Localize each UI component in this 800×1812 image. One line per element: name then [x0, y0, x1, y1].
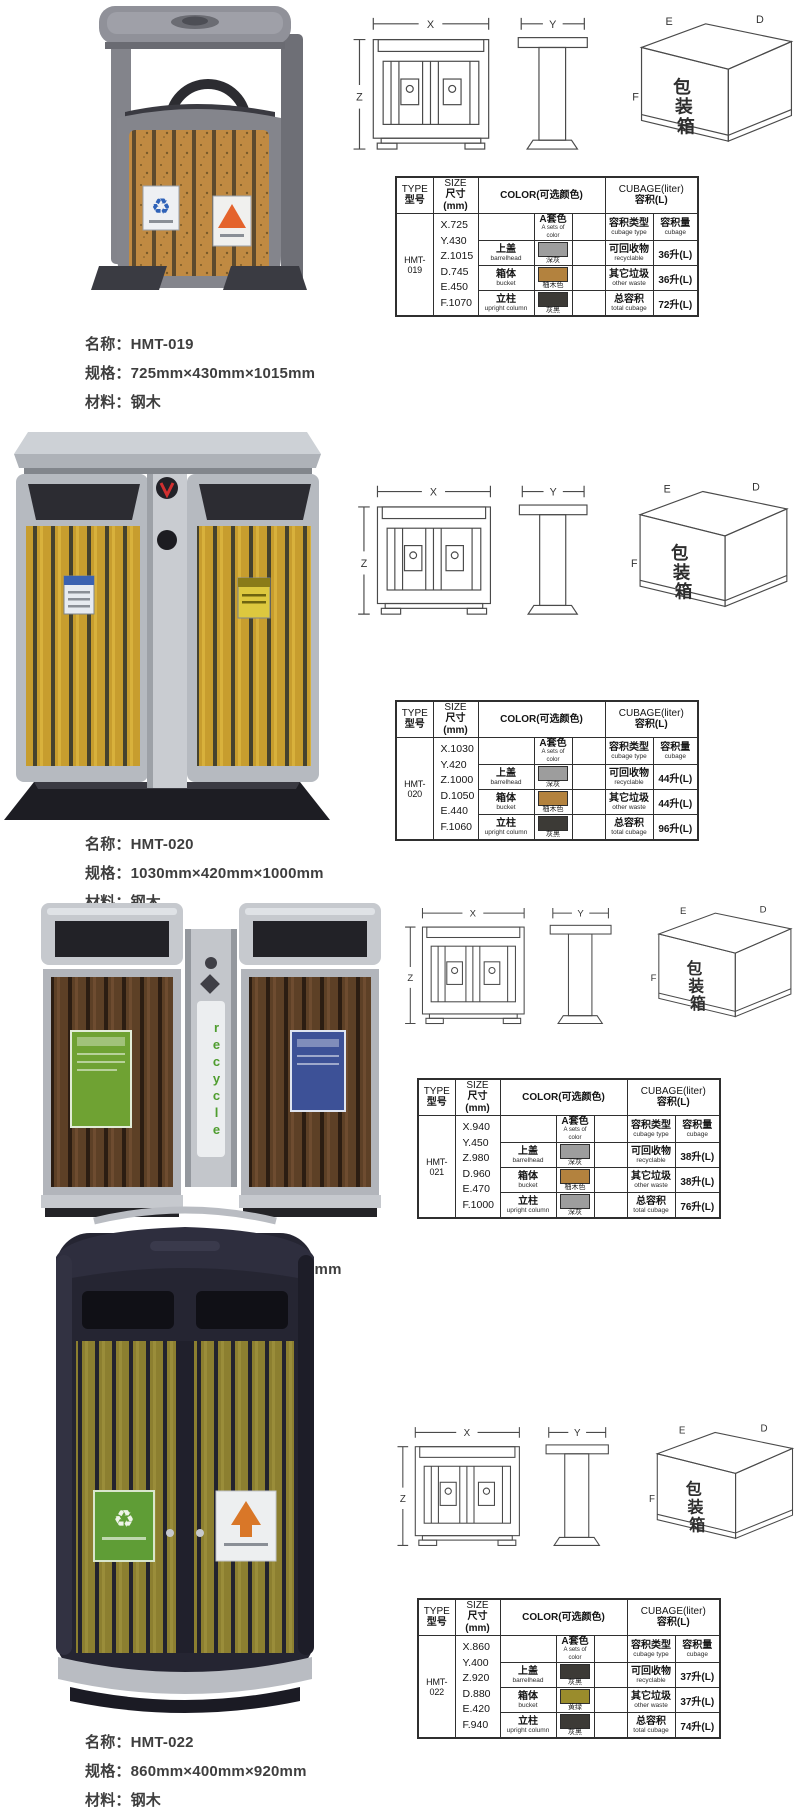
- color-swatch: [538, 766, 568, 781]
- spec-table-hmt-019: TYPE型号 SIZE尺寸(mm) COLOR(可选颜色) CUBAGE(lit…: [395, 176, 699, 317]
- product-photo-hmt-022: ♻: [30, 1195, 340, 1727]
- part-en: bucket: [479, 280, 534, 288]
- cubage-type: 总容积: [606, 294, 653, 305]
- swatch-cell: 柚木色: [556, 1168, 594, 1193]
- recycle-icon: ♻: [151, 194, 171, 219]
- cubage-type-cell: 总容积total cubage: [627, 1713, 675, 1739]
- cubage-amount-header-cell: 容积量cubage: [675, 1116, 720, 1143]
- cubage-cn: 容积(L): [606, 719, 698, 731]
- blank-cell: [594, 1636, 627, 1663]
- color-header: COLOR(可选颜色): [479, 714, 605, 726]
- part-cn: 立柱: [501, 1196, 556, 1207]
- label-text-line: [297, 1055, 339, 1057]
- cubage-type-header-cell: 容积类型cubage type: [605, 214, 653, 241]
- size-value: X.725: [441, 218, 478, 234]
- swatch-cell: 深灰: [534, 241, 572, 266]
- product-name-line: 名称：HMT-022: [85, 1728, 307, 1757]
- col-cubage: CUBAGE(liter)容积(L): [627, 1079, 720, 1116]
- caption-hmt-022: 名称：HMT-022 规格：860mm×400mm×920mm 材料：钢木: [85, 1728, 307, 1812]
- cubage-type-cell: 可回收物recyclable: [627, 1663, 675, 1688]
- label-text-line: [224, 1543, 268, 1546]
- label-text-line: [297, 1063, 339, 1065]
- part-cn: 箱体: [501, 1691, 556, 1702]
- upright-column: [281, 34, 303, 282]
- col-type: TYPE型号: [418, 1599, 455, 1636]
- lid-vent: [150, 1241, 220, 1251]
- cubage-type: 总容积: [628, 1716, 675, 1727]
- cubage-type-en: cubage type: [606, 753, 653, 761]
- part-cell: 立柱upright column: [500, 1713, 556, 1739]
- part-cell: 立柱upright column: [478, 815, 534, 841]
- lid-highlight: [47, 908, 177, 915]
- swatch-cell: 灰黑: [556, 1713, 594, 1739]
- cubage-type-en: total cubage: [628, 1207, 675, 1215]
- product-name-line: 名称：HMT-020: [85, 830, 324, 859]
- cubage-type-en: other waste: [606, 280, 653, 288]
- cubage-amount-en: cubage: [654, 229, 698, 237]
- spec-table-hmt-022: TYPE型号 SIZE尺寸(mm) COLOR(可选颜色) CUBAGE(lit…: [417, 1598, 721, 1739]
- name-value: HMT-022: [131, 1734, 194, 1751]
- part-cn: 上盖: [479, 768, 534, 779]
- cubage-value: 74升(L): [675, 1713, 720, 1739]
- label-header: [64, 576, 94, 585]
- post-emblem: [205, 957, 217, 969]
- size-value: F.1060: [441, 820, 478, 836]
- bin-opening-left: [28, 484, 140, 520]
- blank-cell: [572, 291, 605, 317]
- size-value: E.470: [463, 1182, 500, 1198]
- cubage-amount-cn: 容积量: [676, 1120, 720, 1131]
- type-en: TYPE: [397, 708, 433, 719]
- a-color-en: A sets of color: [535, 749, 572, 764]
- product-spec-line: 规格：725mm×430mm×1015mm: [85, 359, 315, 388]
- cubage-type-en: recyclable: [628, 1157, 675, 1165]
- blank-cell: [572, 266, 605, 291]
- label-header: [238, 578, 270, 587]
- color-header: COLOR(可选颜色): [501, 1612, 627, 1624]
- type-cn: 型号: [419, 1617, 455, 1629]
- cubage-type-en: other waste: [628, 1182, 675, 1190]
- lid-highlight: [245, 908, 375, 915]
- cubage-type-header-cell: 容积类型cubage type: [627, 1636, 675, 1663]
- tech-drawing-hmt-022: [390, 1420, 800, 1549]
- spec-table-hmt-021: TYPE型号 SIZE尺寸(mm) COLOR(可选颜色) CUBAGE(lit…: [417, 1078, 721, 1219]
- part-cell: 上盖barrelhead: [478, 241, 534, 266]
- lock-left: [166, 1529, 174, 1537]
- blank-cell: [500, 1636, 556, 1663]
- size-value: Y.400: [463, 1656, 500, 1672]
- recycle-vertical-text: recycle: [198, 1004, 224, 1154]
- roof-top: [14, 432, 321, 454]
- cubage-type-en: cubage type: [606, 229, 653, 237]
- color-swatch: [560, 1664, 590, 1679]
- cubage-amount-en: cubage: [676, 1651, 720, 1659]
- cubage-type: 总容积: [628, 1196, 675, 1207]
- swatch-label: 深灰: [535, 257, 572, 265]
- table-row: HMT-021 X.940 Y.450 Z.980 D.960 E.470 F.…: [418, 1116, 720, 1143]
- color-swatch: [560, 1144, 590, 1159]
- blank-cell: [572, 241, 605, 266]
- product-name-line: 名称：HMT-019: [85, 330, 315, 359]
- part-en: barrelhead: [501, 1157, 556, 1165]
- size-value: X.1030: [441, 742, 478, 758]
- cubage-type-cell: 总容积total cubage: [605, 291, 653, 317]
- spec-label: 规格：: [85, 365, 131, 382]
- cubage-type: 可回收物: [628, 1146, 675, 1157]
- swatch-label: 深灰: [535, 781, 572, 789]
- swatch-label: 深灰: [557, 1159, 594, 1167]
- spec-label: 规格：: [85, 865, 131, 882]
- color-header: COLOR(可选颜色): [479, 190, 605, 202]
- cubage-type-cn: 容积类型: [628, 1120, 675, 1131]
- part-cell: 上盖barrelhead: [500, 1143, 556, 1168]
- name-label: 名称：: [85, 1734, 131, 1751]
- cubage-type: 其它垃圾: [606, 793, 653, 804]
- cubage-value: 37升(L): [675, 1688, 720, 1713]
- cubage-value: 44升(L): [653, 790, 698, 815]
- cubage-type-cell: 可回收物recyclable: [605, 241, 653, 266]
- col-size: SIZE尺寸(mm): [455, 1599, 500, 1636]
- size-value: Z.920: [463, 1671, 500, 1687]
- foot-right: [223, 266, 307, 290]
- top-handle: [94, 1210, 276, 1221]
- type-en: TYPE: [419, 1606, 455, 1617]
- size-cn: 尺寸(mm): [456, 1611, 500, 1635]
- spec-value: 860mm×400mm×920mm: [131, 1763, 307, 1780]
- blank-cell: [594, 1116, 627, 1143]
- color-swatch: [538, 791, 568, 806]
- label-text-line: [242, 601, 266, 604]
- cubage-type-cell: 可回收物recyclable: [605, 765, 653, 790]
- size-value: E.420: [463, 1702, 500, 1718]
- swatch-cell: 灰黑: [534, 291, 572, 317]
- size-value: D.745: [441, 265, 478, 281]
- product-material-line: 材料：钢木: [85, 1786, 307, 1812]
- size-value: D.960: [463, 1167, 500, 1183]
- bin-opening-right: [196, 1291, 288, 1329]
- blank-cell: [572, 738, 605, 765]
- color-swatch: [538, 292, 568, 307]
- swatch-label: 灰黑: [535, 831, 572, 839]
- label-text-line: [68, 591, 90, 594]
- size-value: D.880: [463, 1687, 500, 1703]
- cubage-value: 44升(L): [653, 765, 698, 790]
- cubage-type-cell: 其它垃圾other waste: [605, 790, 653, 815]
- size-value: Z.1000: [441, 773, 478, 789]
- a-color-cn: A套色: [557, 1636, 594, 1647]
- cubage-type-en: total cubage: [628, 1727, 675, 1735]
- color-swatch: [560, 1169, 590, 1184]
- swatch-label: 灰黑: [557, 1729, 594, 1737]
- part-cell: 箱体bucket: [500, 1168, 556, 1193]
- product-photo-hmt-019: ♻: [55, 0, 335, 300]
- label-header: [297, 1039, 339, 1047]
- label-text-line: [68, 598, 90, 601]
- type-cn: 型号: [419, 1097, 455, 1109]
- cubage-cn: 容积(L): [628, 1097, 720, 1109]
- type-cn: 型号: [397, 719, 433, 731]
- part-en: bucket: [501, 1702, 556, 1710]
- size-value: E.450: [441, 280, 478, 296]
- cubage-value: 37升(L): [675, 1663, 720, 1688]
- wood-slats-right: [197, 526, 311, 766]
- cubage-type: 其它垃圾: [606, 269, 653, 280]
- sizes-cell: X.1030 Y.420 Z.1000 D.1050 E.440 F.1060: [433, 738, 478, 841]
- cubage-value: 72升(L): [653, 291, 698, 317]
- cubage-type: 可回收物: [628, 1666, 675, 1677]
- blank-cell: [572, 815, 605, 841]
- cubage-en: CUBAGE(liter): [606, 708, 698, 719]
- cubage-type-cell: 总容积total cubage: [627, 1193, 675, 1219]
- swatch-cell: 深灰: [556, 1193, 594, 1219]
- part-en: upright column: [501, 1207, 556, 1215]
- model-cell: HMT-020: [396, 738, 433, 841]
- blank-cell: [478, 738, 534, 765]
- wood-slats-left: [26, 526, 140, 766]
- sizes-cell: X.860 Y.400 Z.920 D.880 E.420 F.940: [455, 1636, 500, 1739]
- post-shade: [185, 929, 191, 1187]
- blank-cell: [594, 1663, 627, 1688]
- blank-cell: [594, 1713, 627, 1739]
- pillar-left: [56, 1255, 72, 1655]
- name-value: HMT-020: [131, 836, 194, 853]
- blank-cell: [594, 1168, 627, 1193]
- size-cn: 尺寸(mm): [434, 713, 478, 737]
- cubage-type-cell: 其它垃圾other waste: [605, 266, 653, 291]
- swatch-label: 灰黑: [557, 1679, 594, 1687]
- foot-left: [91, 266, 167, 290]
- size-en: SIZE: [456, 1600, 500, 1611]
- cubage-value: 36升(L): [653, 241, 698, 266]
- size-cn: 尺寸(mm): [434, 189, 478, 213]
- a-color-cn: A套色: [535, 738, 572, 749]
- roof-shadow: [24, 468, 312, 474]
- cubage-amount-cn: 容积量: [676, 1640, 720, 1651]
- size-value: Z.1015: [441, 249, 478, 265]
- spec-value: 1030mm×420mm×1000mm: [131, 865, 324, 882]
- table-row: HMT-020 X.1030 Y.420 Z.1000 D.1050 E.440…: [396, 738, 698, 765]
- col-size: SIZE尺寸(mm): [433, 701, 478, 738]
- part-cell: 上盖barrelhead: [478, 765, 534, 790]
- col-cubage: CUBAGE(liter)容积(L): [605, 701, 698, 738]
- size-value: Y.450: [463, 1136, 500, 1152]
- material-label: 材料：: [85, 1792, 131, 1809]
- size-value: Y.430: [441, 234, 478, 250]
- col-color: COLOR(可选颜色): [478, 177, 605, 214]
- col-type: TYPE型号: [396, 177, 433, 214]
- swatch-cell: 深灰: [534, 765, 572, 790]
- size-value: E.440: [441, 804, 478, 820]
- blank-cell: [572, 790, 605, 815]
- blank-cell: [594, 1193, 627, 1219]
- table-row: HMT-019 X.725 Y.430 Z.1015 D.745 E.450 F…: [396, 214, 698, 241]
- name-value: HMT-019: [131, 336, 194, 353]
- blank-cell: [478, 214, 534, 241]
- part-en: upright column: [479, 829, 534, 837]
- cubage-type: 其它垃圾: [628, 1171, 675, 1182]
- cubage-type-header-cell: 容积类型cubage type: [605, 738, 653, 765]
- color-swatch: [560, 1689, 590, 1704]
- col-color: COLOR(可选颜色): [500, 1079, 627, 1116]
- part-en: barrelhead: [501, 1677, 556, 1685]
- cubage-type-cell: 可回收物recyclable: [627, 1143, 675, 1168]
- swatch-cell: 灰黑: [534, 815, 572, 841]
- blank-cell: [500, 1116, 556, 1143]
- model-cell: HMT-021: [418, 1116, 455, 1219]
- model-cell: HMT-022: [418, 1636, 455, 1739]
- cubage-amount-header-cell: 容积量cubage: [653, 214, 698, 241]
- cubage-type-cell: 总容积total cubage: [605, 815, 653, 841]
- cubage-value: 36升(L): [653, 266, 698, 291]
- col-color: COLOR(可选颜色): [500, 1599, 627, 1636]
- product-photo-hmt-020: [0, 408, 335, 820]
- a-color-en: A sets of color: [535, 225, 572, 240]
- label-text-line: [149, 220, 173, 223]
- part-cell: 箱体bucket: [478, 266, 534, 291]
- pillar-right: [298, 1255, 314, 1655]
- blank-cell: [572, 214, 605, 241]
- cubage-type-cell: 其它垃圾other waste: [627, 1168, 675, 1193]
- label-text-line: [77, 1061, 125, 1063]
- type-en: TYPE: [419, 1086, 455, 1097]
- size-cn: 尺寸(mm): [456, 1091, 500, 1115]
- size-value: Y.420: [441, 758, 478, 774]
- size-value: F.940: [463, 1718, 500, 1734]
- cubage-amount-en: cubage: [654, 753, 698, 761]
- swatch-label: 柚木色: [557, 1184, 594, 1192]
- color-swatch: [538, 267, 568, 282]
- cubage-amount-cn: 容积量: [654, 742, 698, 753]
- a-color-cell: A套色A sets of color: [534, 214, 572, 241]
- cubage-amount-cn: 容积量: [654, 218, 698, 229]
- blank-cell: [594, 1688, 627, 1713]
- col-cubage: CUBAGE(liter)容积(L): [627, 1599, 720, 1636]
- cubage-value: 76升(L): [675, 1193, 720, 1219]
- part-en: barrelhead: [479, 255, 534, 263]
- color-swatch: [560, 1194, 590, 1209]
- a-color-cell: A套色A sets of color: [534, 738, 572, 765]
- a-color-cn: A套色: [535, 214, 572, 225]
- col-size: SIZE尺寸(mm): [455, 1079, 500, 1116]
- swatch-label: 灰黑: [535, 307, 572, 315]
- label-header: [77, 1037, 125, 1046]
- label-text-line: [220, 234, 244, 237]
- tech-drawing-hmt-021: [398, 901, 798, 1027]
- material-value: 钢木: [131, 1792, 161, 1809]
- color-header: COLOR(可选颜色): [501, 1092, 627, 1104]
- swatch-cell: 柚木色: [534, 790, 572, 815]
- part-cn: 立柱: [479, 818, 534, 829]
- cubage-type-header-cell: 容积类型cubage type: [627, 1116, 675, 1143]
- part-cn: 箱体: [501, 1171, 556, 1182]
- cubage-type-cn: 容积类型: [606, 218, 653, 229]
- bin-opening-left: [82, 1291, 174, 1329]
- swatch-label: 柚木色: [535, 806, 572, 814]
- swatch-cell: 黄绿: [556, 1688, 594, 1713]
- cubage-type-en: cubage type: [628, 1651, 675, 1659]
- color-swatch: [538, 242, 568, 257]
- cubage-en: CUBAGE(liter): [606, 184, 698, 195]
- col-size: SIZE尺寸(mm): [433, 177, 478, 214]
- cubage-amount-header-cell: 容积量cubage: [653, 738, 698, 765]
- part-cn: 上盖: [501, 1146, 556, 1157]
- cubage-type-en: recyclable: [628, 1677, 675, 1685]
- a-color-cell: A套色A sets of color: [556, 1116, 594, 1143]
- cubage-value: 38升(L): [675, 1143, 720, 1168]
- part-cn: 上盖: [501, 1666, 556, 1677]
- col-type: TYPE型号: [396, 701, 433, 738]
- roof-shadow: [105, 42, 285, 49]
- post-shade: [231, 929, 237, 1187]
- column-shade: [147, 470, 153, 788]
- cubage-type: 可回收物: [606, 244, 653, 255]
- size-value: D.1050: [441, 789, 478, 805]
- a-color-cell: A套色A sets of color: [556, 1636, 594, 1663]
- name-label: 名称：: [85, 836, 131, 853]
- part-cn: 立柱: [479, 294, 534, 305]
- part-cell: 上盖barrelhead: [500, 1663, 556, 1688]
- part-en: barrelhead: [479, 779, 534, 787]
- size-value: X.940: [463, 1120, 500, 1136]
- cubage-type-en: recyclable: [606, 255, 653, 263]
- swatch-label: 柚木色: [535, 282, 572, 290]
- bin-opening-right: [199, 484, 311, 520]
- table-row: HMT-022 X.860 Y.400 Z.920 D.880 E.420 F.…: [418, 1636, 720, 1663]
- part-en: upright column: [479, 305, 534, 313]
- label-text-line: [242, 594, 266, 597]
- swatch-cell: 灰黑: [556, 1663, 594, 1688]
- size-value: F.1000: [463, 1198, 500, 1214]
- cubage-amount-header-cell: 容积量cubage: [675, 1636, 720, 1663]
- ashtray-hole: [157, 530, 177, 550]
- product-spec-line: 规格：860mm×400mm×920mm: [85, 1757, 307, 1786]
- cubage-type-en: recyclable: [606, 779, 653, 787]
- label-text-line: [77, 1069, 117, 1071]
- swatch-label: 深灰: [557, 1209, 594, 1217]
- cubage-type-en: total cubage: [606, 305, 653, 313]
- cubage-type-cn: 容积类型: [628, 1640, 675, 1651]
- spec-value: 725mm×430mm×1015mm: [131, 365, 316, 382]
- part-cn: 立柱: [501, 1716, 556, 1727]
- bin-opening-right: [253, 921, 367, 957]
- col-type: TYPE型号: [418, 1079, 455, 1116]
- color-swatch: [560, 1714, 590, 1729]
- blank-cell: [594, 1143, 627, 1168]
- col-cubage: CUBAGE(liter)容积(L): [605, 177, 698, 214]
- model-cell: HMT-019: [396, 214, 433, 317]
- part-cell: 箱体bucket: [478, 790, 534, 815]
- tech-drawing-hmt-019: [345, 10, 800, 153]
- table-header-row: TYPE型号 SIZE尺寸(mm) COLOR(可选颜色) CUBAGE(lit…: [396, 177, 698, 214]
- part-cn: 箱体: [479, 793, 534, 804]
- blank-cell: [572, 765, 605, 790]
- table-header-row: TYPE型号 SIZE尺寸(mm) COLOR(可选颜色) CUBAGE(lit…: [396, 701, 698, 738]
- size-en: SIZE: [456, 1080, 500, 1091]
- cubage-value: 96升(L): [653, 815, 698, 841]
- cubage-type-en: other waste: [606, 804, 653, 812]
- size-value: X.860: [463, 1640, 500, 1656]
- cubage-type-en: other waste: [628, 1702, 675, 1710]
- cubage-en: CUBAGE(liter): [628, 1606, 720, 1617]
- part-cell: 立柱upright column: [478, 291, 534, 317]
- recycle-icon: ♻: [113, 1506, 135, 1533]
- size-value: Z.980: [463, 1151, 500, 1167]
- cubage-cn: 容积(L): [606, 195, 698, 207]
- spec-label: 规格：: [85, 1763, 131, 1780]
- swatch-cell: 深灰: [556, 1143, 594, 1168]
- spec-table-hmt-020: TYPE型号 SIZE尺寸(mm) COLOR(可选颜色) CUBAGE(lit…: [395, 700, 699, 841]
- center-divider: [176, 1341, 194, 1653]
